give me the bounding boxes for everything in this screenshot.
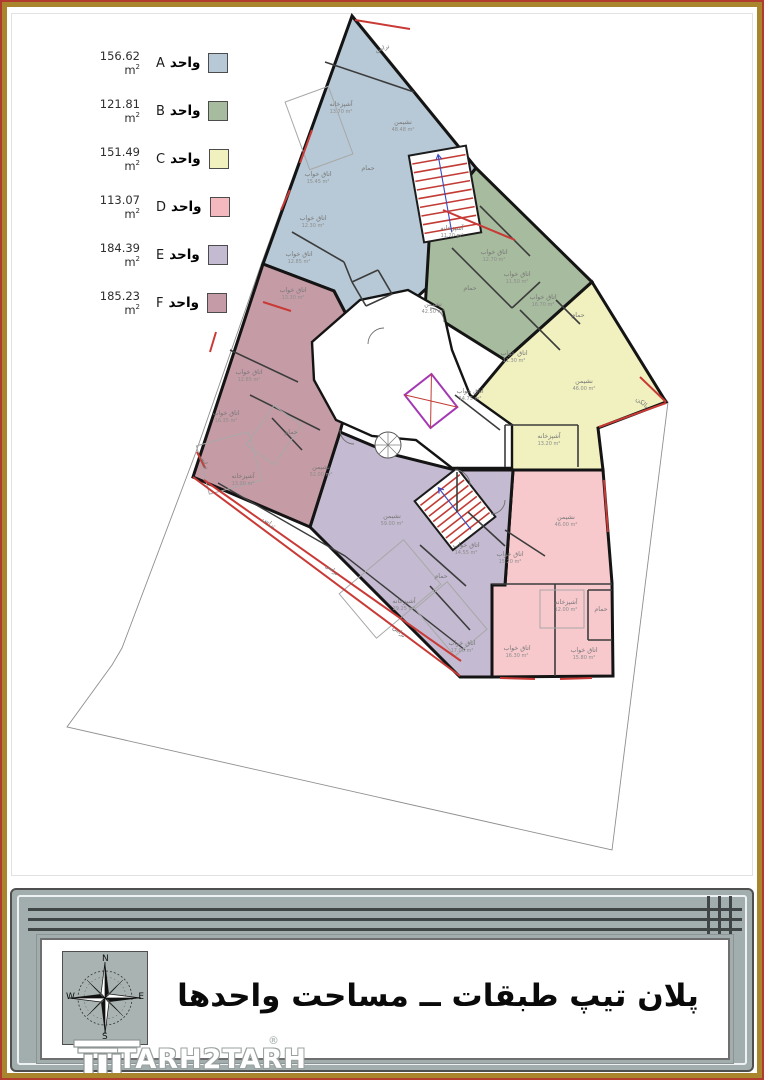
legend-color-swatch [208, 53, 228, 73]
compass-west-label: W [66, 992, 75, 1002]
drawing-sheet: تراسآشپزخانه13.70 m²نشیمن48.48 m²اتاق خو… [0, 0, 764, 1080]
spiral-stair [375, 432, 401, 458]
legend-color-swatch [208, 245, 228, 265]
legend-area: 156.62 m2 [82, 49, 140, 77]
room-label: حمام [361, 165, 374, 172]
legend-row-C: 151.49 m2Cواحد [82, 148, 230, 170]
room-label: حمام [284, 429, 297, 436]
legend-area: 113.07 m2 [82, 193, 140, 221]
brand-name: TARH2TARH [118, 1044, 307, 1075]
legend-color-swatch [210, 197, 230, 217]
legend-row-E: 184.39 m2Eواحد [82, 244, 230, 266]
compass-north-label: N [102, 954, 109, 964]
legend-color-swatch [207, 293, 227, 313]
room-label: آشپزخانه13.70 m² [329, 99, 353, 115]
legend-unit-letter: F [156, 296, 163, 311]
legend-row-B: 121.81 m2Bواحد [82, 100, 230, 122]
room-label: حمام [463, 285, 476, 292]
legend-color-swatch [208, 101, 228, 121]
title-block: N E W S پلان تیپ طبقات ــ مساحت واحدها T… [10, 888, 754, 1072]
room-label: آشپزخانه13.20 m² [537, 431, 561, 447]
room-label: آشپزخانه29.25 m² [392, 596, 416, 612]
room-label: حمام [434, 573, 447, 580]
title-block-rule [28, 918, 742, 921]
legend-area: 121.81 m2 [82, 97, 140, 125]
title-block-rule [28, 908, 742, 911]
legend-unit-word: واحد [170, 55, 201, 71]
legend-unit-letter: B [156, 104, 165, 119]
sheet-title: پلان تیپ طبقات ــ مساحت واحدها [172, 956, 704, 1036]
legend-color-swatch [209, 149, 229, 169]
legend-row-F: 185.23 m2Fواحد [82, 292, 230, 314]
legend-unit-word: واحد [171, 199, 202, 215]
legend-row-D: 113.07 m2Dواحد [82, 196, 230, 218]
window-line [560, 678, 592, 679]
legend-unit-word: واحد [170, 103, 201, 119]
registered-mark: ® [268, 1034, 279, 1047]
compass-east-label: E [138, 992, 144, 1002]
logo: TARH2TARH ® ALL RIGHT RESERVED [72, 1026, 302, 1080]
room-label: آشپزخانه11.20 m² [440, 223, 464, 239]
legend-unit-letter: D [156, 200, 166, 215]
window-line [500, 678, 535, 679]
title-block-rule [28, 928, 742, 931]
room-label: حمام [594, 606, 607, 613]
legend-row-A: 156.62 m2Aواحد [82, 52, 230, 74]
legend-area: 151.49 m2 [82, 145, 140, 173]
legend-unit-word: واحد [170, 151, 201, 167]
legend-unit-letter: A [156, 56, 165, 71]
unit-legend: 156.62 m2Aواحد121.81 m2Bواحد151.49 m2Cوا… [82, 52, 230, 340]
legend-unit-letter: E [156, 248, 164, 263]
legend-area: 185.23 m2 [82, 289, 140, 317]
room-label: آشپزخانه13.00 m² [231, 471, 255, 487]
legend-unit-letter: C [156, 152, 165, 167]
legend-area: 184.39 m2 [82, 241, 140, 269]
legend-unit-word: واحد [168, 295, 199, 311]
room-label: حمام [571, 312, 584, 319]
room-label: آشپزخانه12.00 m² [554, 597, 578, 613]
brand-tagline: ALL RIGHT RESERVED [128, 1076, 271, 1080]
legend-unit-word: واحد [169, 247, 200, 263]
title-box: N E W S پلان تیپ طبقات ــ مساحت واحدها T… [40, 938, 730, 1060]
